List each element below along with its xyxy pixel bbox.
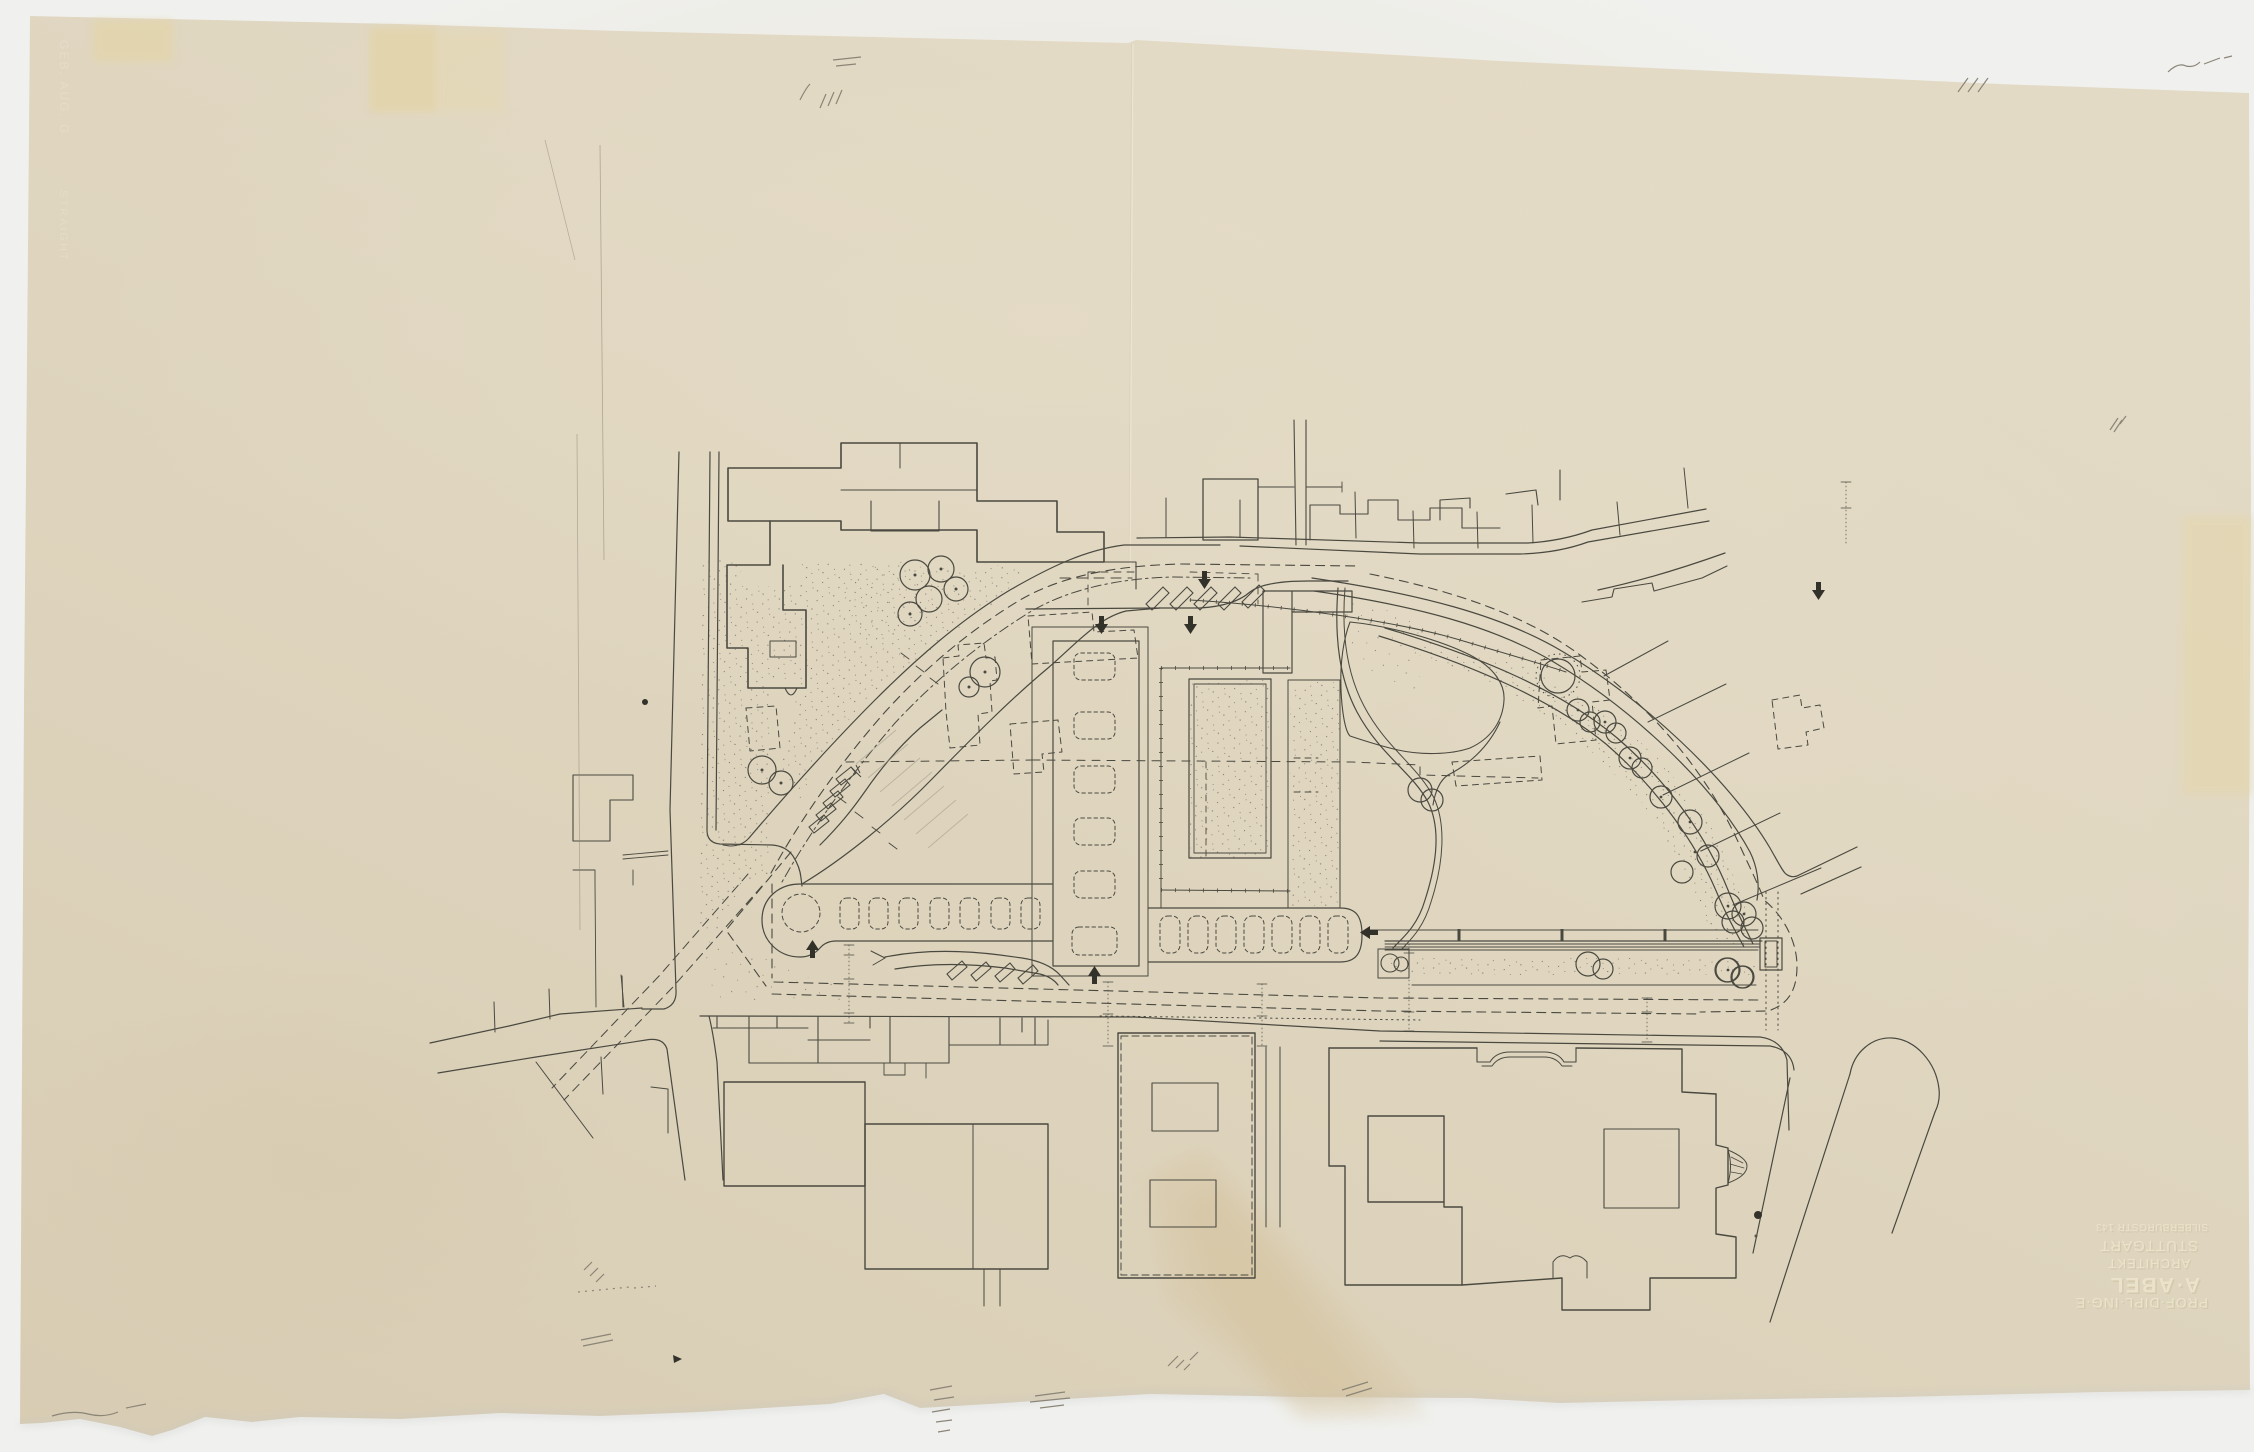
svg-text:SILBERBURGSTR 143: SILBERBURGSTR 143 [2096, 1221, 2208, 1232]
svg-text:GEB. AUG. G: GEB. AUG. G [57, 40, 71, 135]
svg-text:STRAIGHT: STRAIGHT [57, 190, 69, 262]
svg-text:A·ABEL: A·ABEL [2109, 1273, 2200, 1296]
svg-text:ARCHITEKT: ARCHITEKT [2107, 1256, 2190, 1271]
svg-text:STUTTGART: STUTTGART [2099, 1237, 2198, 1254]
svg-text:PROF·DIPL·ING·E: PROF·DIPL·ING·E [2075, 1295, 2208, 1311]
